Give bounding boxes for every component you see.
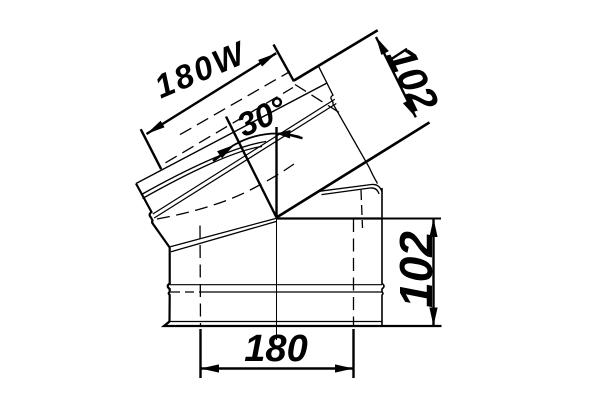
svg-text:102: 102	[390, 231, 442, 308]
svg-text:180W: 180W	[149, 33, 252, 105]
svg-text:102: 102	[378, 40, 447, 119]
svg-text:180: 180	[244, 328, 307, 370]
